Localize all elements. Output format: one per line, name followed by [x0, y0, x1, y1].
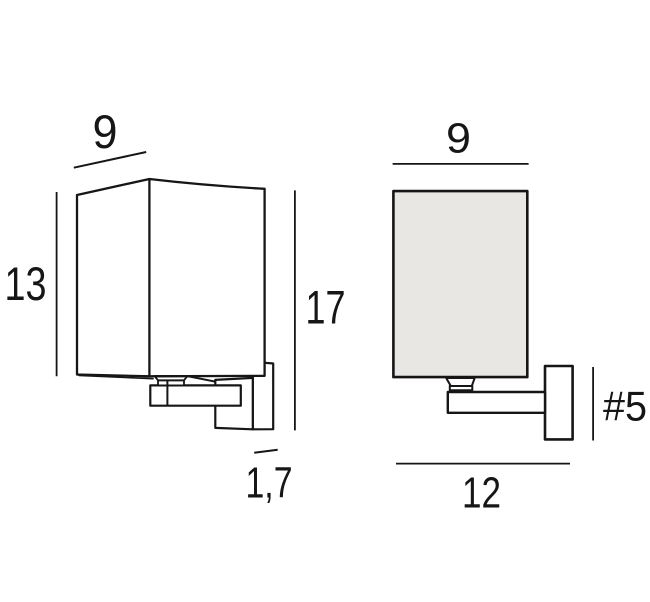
svg-text:9: 9 [446, 115, 471, 163]
svg-text:9: 9 [93, 105, 118, 158]
svg-text:13: 13 [5, 257, 47, 310]
svg-text:#5: #5 [603, 383, 647, 430]
svg-text:1,7: 1,7 [246, 459, 293, 508]
svg-text:17: 17 [306, 281, 346, 334]
svg-text:12: 12 [462, 469, 501, 518]
